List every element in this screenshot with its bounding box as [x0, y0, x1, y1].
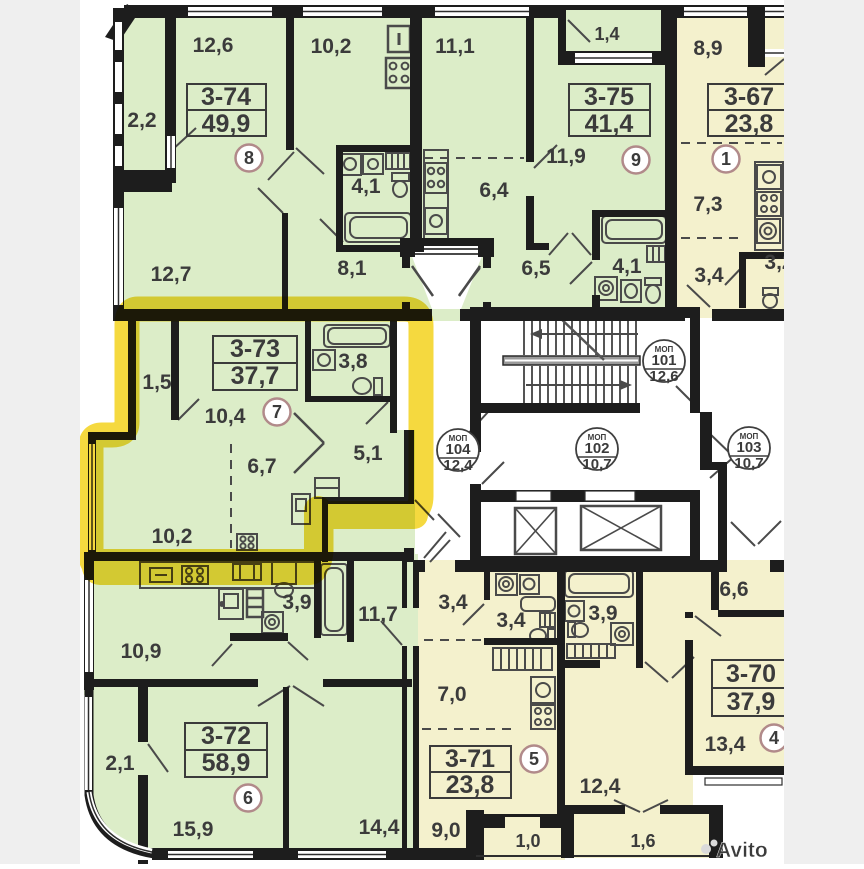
svg-text:3-73: 3-73 — [230, 335, 280, 363]
svg-text:3,9: 3,9 — [588, 602, 617, 625]
svg-text:9: 9 — [631, 150, 641, 170]
svg-text:1: 1 — [721, 149, 731, 169]
svg-text:3,4: 3,4 — [694, 264, 724, 287]
svg-text:103: 103 — [736, 439, 761, 456]
svg-text:3-67: 3-67 — [724, 83, 774, 111]
svg-text:11,1: 11,1 — [435, 35, 475, 58]
svg-text:3-72: 3-72 — [201, 722, 251, 750]
svg-text:6: 6 — [243, 788, 253, 808]
svg-text:11,9: 11,9 — [546, 145, 586, 168]
svg-text:3,9: 3,9 — [282, 591, 311, 614]
svg-text:1,6: 1,6 — [630, 831, 655, 851]
svg-text:101: 101 — [651, 352, 676, 369]
svg-text:5,1: 5,1 — [353, 442, 383, 465]
svg-text:58,9: 58,9 — [202, 749, 251, 777]
svg-text:23,8: 23,8 — [725, 110, 774, 138]
svg-text:49,9: 49,9 — [202, 110, 251, 138]
svg-text:6,6: 6,6 — [719, 578, 748, 601]
svg-text:9,0: 9,0 — [431, 819, 460, 842]
svg-text:14,4: 14,4 — [359, 816, 400, 839]
svg-text:4,1: 4,1 — [612, 255, 642, 278]
svg-text:10,9: 10,9 — [121, 640, 162, 663]
svg-text:104: 104 — [445, 441, 471, 458]
svg-text:6,5: 6,5 — [521, 257, 551, 280]
svg-text:102: 102 — [584, 440, 609, 457]
svg-text:12,6: 12,6 — [193, 34, 234, 57]
svg-text:10,4: 10,4 — [205, 405, 246, 428]
svg-text:41,4: 41,4 — [585, 110, 634, 138]
svg-text:4: 4 — [769, 728, 779, 748]
svg-text:37,9: 37,9 — [727, 688, 776, 716]
svg-text:1,5: 1,5 — [142, 371, 172, 394]
svg-text:7: 7 — [272, 402, 282, 422]
svg-text:2,2: 2,2 — [127, 109, 156, 132]
svg-text:15,9: 15,9 — [173, 818, 214, 841]
svg-text:5: 5 — [529, 749, 539, 769]
svg-text:11,7: 11,7 — [358, 603, 398, 626]
svg-text:3-74: 3-74 — [201, 83, 251, 111]
svg-text:12,4: 12,4 — [580, 775, 621, 798]
svg-text:3,4: 3,4 — [496, 609, 526, 632]
svg-text:10,2: 10,2 — [152, 525, 193, 548]
svg-text:12,7: 12,7 — [151, 263, 192, 286]
svg-text:12,4: 12,4 — [443, 457, 473, 474]
svg-text:3,8: 3,8 — [338, 350, 368, 373]
svg-text:8,9: 8,9 — [693, 37, 722, 60]
svg-text:4,1: 4,1 — [351, 175, 381, 198]
svg-text:23,8: 23,8 — [446, 771, 495, 799]
svg-text:7,3: 7,3 — [693, 193, 722, 216]
svg-text:2,1: 2,1 — [105, 752, 135, 775]
svg-text:3-71: 3-71 — [445, 745, 495, 773]
svg-text:3-75: 3-75 — [584, 83, 634, 111]
svg-text:37,7: 37,7 — [231, 362, 280, 390]
svg-text:6,7: 6,7 — [247, 455, 276, 478]
svg-text:3-70: 3-70 — [726, 660, 776, 688]
svg-text:10,7: 10,7 — [734, 455, 763, 472]
svg-text:Avito: Avito — [716, 839, 768, 862]
svg-text:1,4: 1,4 — [594, 24, 619, 44]
svg-text:10,2: 10,2 — [311, 35, 352, 58]
svg-text:8,1: 8,1 — [337, 257, 367, 280]
svg-text:8: 8 — [244, 148, 254, 168]
svg-text:3,4: 3,4 — [438, 591, 468, 614]
svg-text:1,0: 1,0 — [515, 831, 540, 851]
svg-text:13,4: 13,4 — [705, 733, 746, 756]
svg-text:12,6: 12,6 — [649, 368, 678, 385]
svg-text:6,4: 6,4 — [479, 179, 509, 202]
svg-text:7,0: 7,0 — [437, 683, 466, 706]
svg-text:10,7: 10,7 — [582, 456, 611, 473]
